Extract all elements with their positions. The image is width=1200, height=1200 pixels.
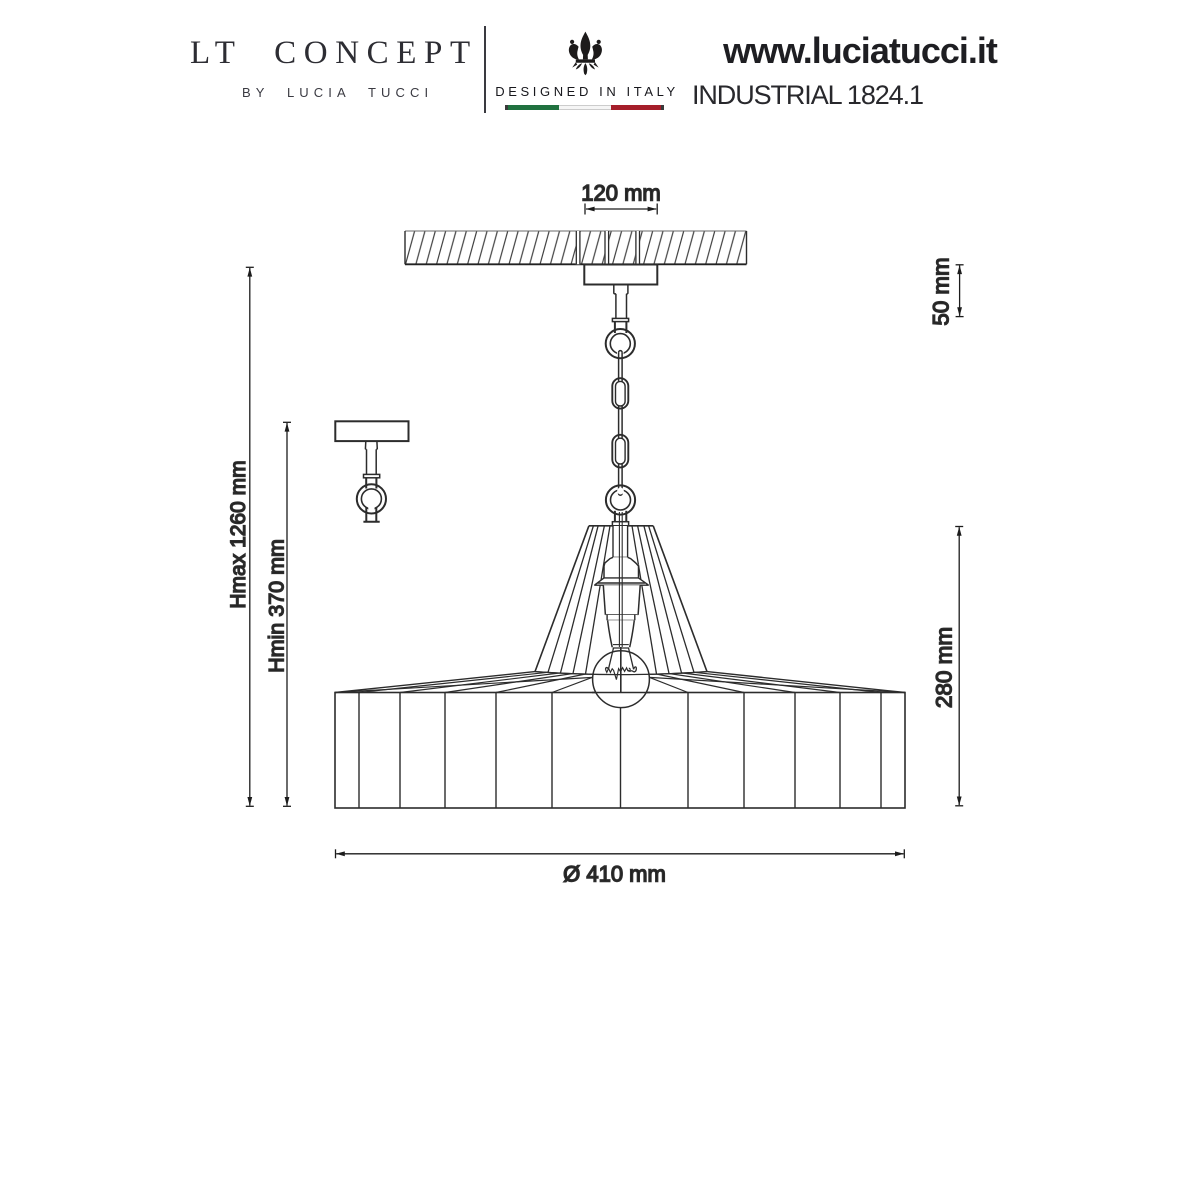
svg-text:120 mm: 120 mm	[581, 181, 660, 206]
svg-text:Ø 410 mm: Ø 410 mm	[563, 862, 666, 887]
svg-text:50 mm: 50 mm	[929, 257, 954, 325]
svg-text:Hmax 1260 mm: Hmax 1260 mm	[227, 460, 250, 608]
svg-text:280 mm: 280 mm	[932, 627, 957, 708]
svg-text:Hmin 370 mm: Hmin 370 mm	[265, 539, 289, 673]
